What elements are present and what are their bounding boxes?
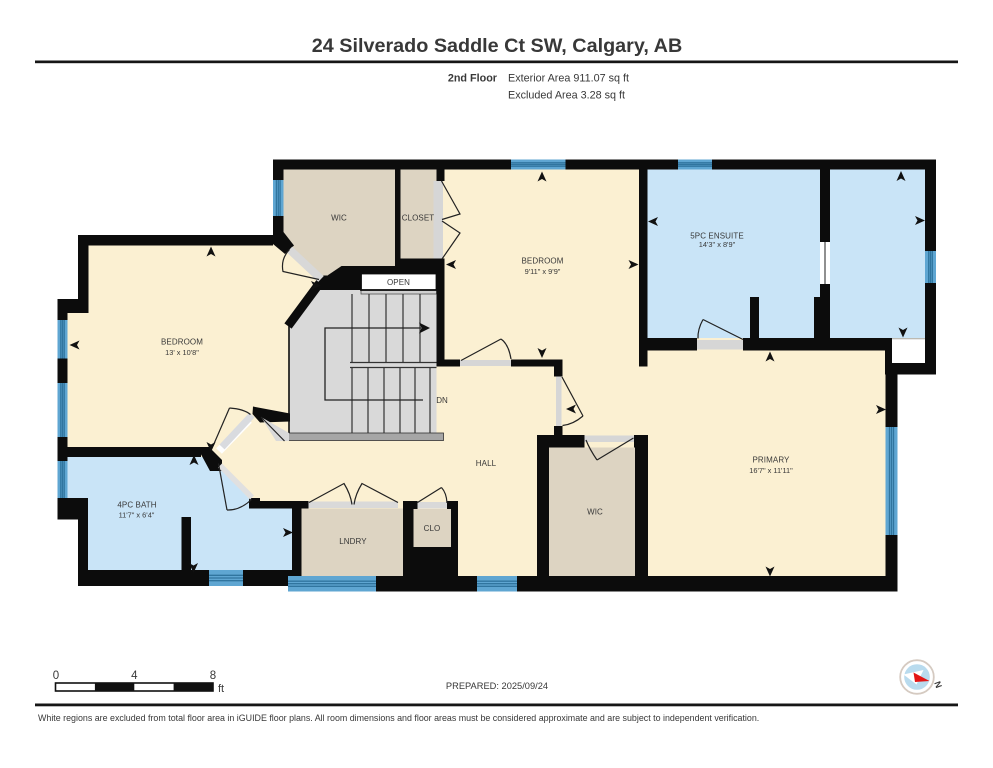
svg-text:White regions are excluded fro: White regions are excluded from total fl… (38, 713, 759, 723)
svg-text:OPEN: OPEN (387, 278, 410, 287)
svg-text:16'7" x 11'11": 16'7" x 11'11" (749, 466, 793, 475)
svg-text:Excluded Area 3.28 sq ft: Excluded Area 3.28 sq ft (508, 90, 625, 102)
svg-text:14'3" x 8'9": 14'3" x 8'9" (699, 240, 736, 249)
svg-text:CLOSET: CLOSET (402, 214, 435, 223)
svg-text:0: 0 (53, 670, 59, 682)
svg-text:WIC: WIC (587, 508, 603, 517)
svg-text:ft: ft (218, 683, 224, 695)
svg-text:4PC BATH: 4PC BATH (117, 501, 156, 510)
svg-text:HALL: HALL (476, 459, 497, 468)
svg-text:9'11" x 9'9": 9'11" x 9'9" (525, 267, 561, 276)
svg-text:4: 4 (131, 670, 138, 682)
svg-text:8: 8 (210, 670, 216, 682)
svg-text:LNDRY: LNDRY (339, 537, 367, 546)
svg-text:BEDROOM: BEDROOM (161, 338, 203, 347)
svg-text:PREPARED: 2025/09/24: PREPARED: 2025/09/24 (446, 681, 548, 691)
svg-text:13' x 10'8": 13' x 10'8" (165, 348, 199, 357)
svg-text:24 Silverado Saddle Ct SW, Cal: 24 Silverado Saddle Ct SW, Calgary, AB (312, 35, 682, 57)
svg-text:PRIMARY: PRIMARY (752, 456, 790, 465)
svg-text:BEDROOM: BEDROOM (521, 257, 563, 266)
svg-text:2nd Floor: 2nd Floor (448, 73, 498, 85)
svg-text:11'7" x 6'4": 11'7" x 6'4" (119, 511, 155, 520)
svg-text:DN: DN (436, 396, 448, 405)
svg-text:WIC: WIC (331, 214, 347, 223)
svg-text:Exterior Area 911.07 sq ft: Exterior Area 911.07 sq ft (508, 73, 629, 85)
svg-text:CLO: CLO (424, 524, 441, 533)
